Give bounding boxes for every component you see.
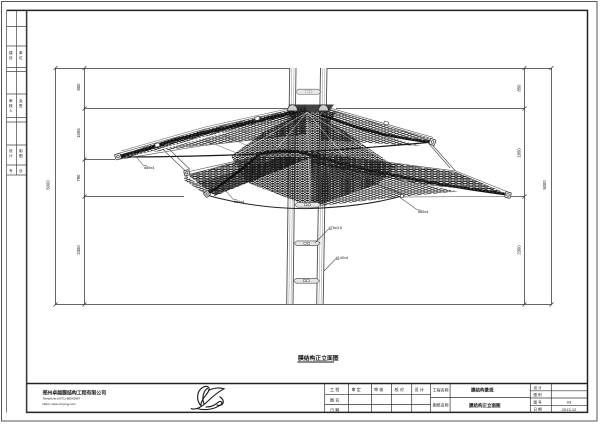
svg-text:业: 业 xyxy=(19,168,23,173)
svg-text:Http//: www.zzzymjg.com: Http//: www.zzzymjg.com xyxy=(43,402,77,406)
svg-text:1950: 1950 xyxy=(517,148,522,158)
svg-text:图 名: 图 名 xyxy=(330,397,339,403)
svg-text:#89x4: #89x4 xyxy=(144,166,154,170)
svg-text:设 计: 设 计 xyxy=(534,385,543,390)
svg-text:#76x3.5: #76x3.5 xyxy=(329,226,343,230)
svg-text:设 计: 设 计 xyxy=(415,386,424,392)
svg-text:2300: 2300 xyxy=(76,245,81,255)
svg-text:位: 位 xyxy=(19,55,23,60)
svg-text:设: 设 xyxy=(9,55,13,60)
svg-text:设: 设 xyxy=(9,148,13,153)
svg-text:建: 建 xyxy=(9,50,13,55)
svg-text:签: 签 xyxy=(19,103,23,108)
svg-text:5000: 5000 xyxy=(46,180,51,190)
svg-text:2300: 2300 xyxy=(517,245,522,255)
svg-text:工程名称: 工程名称 xyxy=(433,386,449,392)
svg-text:膜结构正立面图: 膜结构正立面图 xyxy=(298,354,339,362)
svg-text:#140x4: #140x4 xyxy=(336,256,348,260)
svg-text:郑州卓越膜结构工程有限公司: 郑州卓越膜结构工程有限公司 xyxy=(43,389,107,396)
svg-text:审 定: 审 定 xyxy=(352,386,361,392)
svg-text:膜结构景观: 膜结构景观 xyxy=(471,387,494,394)
svg-text:03: 03 xyxy=(567,400,572,405)
svg-text:2013-12: 2013-12 xyxy=(562,407,577,412)
svg-text:1055: 1055 xyxy=(76,128,81,138)
svg-text:单: 单 xyxy=(19,50,23,55)
svg-text:850: 850 xyxy=(76,83,81,91)
svg-text:#89x4: #89x4 xyxy=(418,210,428,214)
svg-text:790: 790 xyxy=(76,174,81,182)
svg-text:核: 核 xyxy=(9,103,13,108)
svg-text:图 别: 图 别 xyxy=(534,392,543,397)
svg-text:日 期: 日 期 xyxy=(330,407,339,413)
svg-text:工 程: 工 程 xyxy=(330,386,339,392)
svg-text:人: 人 xyxy=(9,108,13,113)
svg-text:5000: 5000 xyxy=(542,180,547,190)
svg-text:专: 专 xyxy=(9,168,13,173)
svg-text:日 期: 日 期 xyxy=(534,407,543,412)
svg-text:会: 会 xyxy=(19,98,23,103)
svg-text:#89x4: #89x4 xyxy=(234,200,244,204)
svg-text:图 号: 图 号 xyxy=(534,399,543,404)
svg-text:850: 850 xyxy=(517,84,522,92)
svg-text:Telephone:(0371)-86542867: Telephone:(0371)-86542867 xyxy=(43,397,81,401)
svg-text:膜结构正立面图: 膜结构正立面图 xyxy=(469,402,501,409)
svg-text:审: 审 xyxy=(9,98,13,103)
svg-text:制: 制 xyxy=(19,148,23,153)
svg-text:计: 计 xyxy=(9,153,13,158)
svg-text:图: 图 xyxy=(19,154,23,158)
svg-text:校 对: 校 对 xyxy=(395,386,404,392)
svg-text:审 核: 审 核 xyxy=(374,386,383,392)
svg-text:图纸名称: 图纸名称 xyxy=(433,402,449,408)
